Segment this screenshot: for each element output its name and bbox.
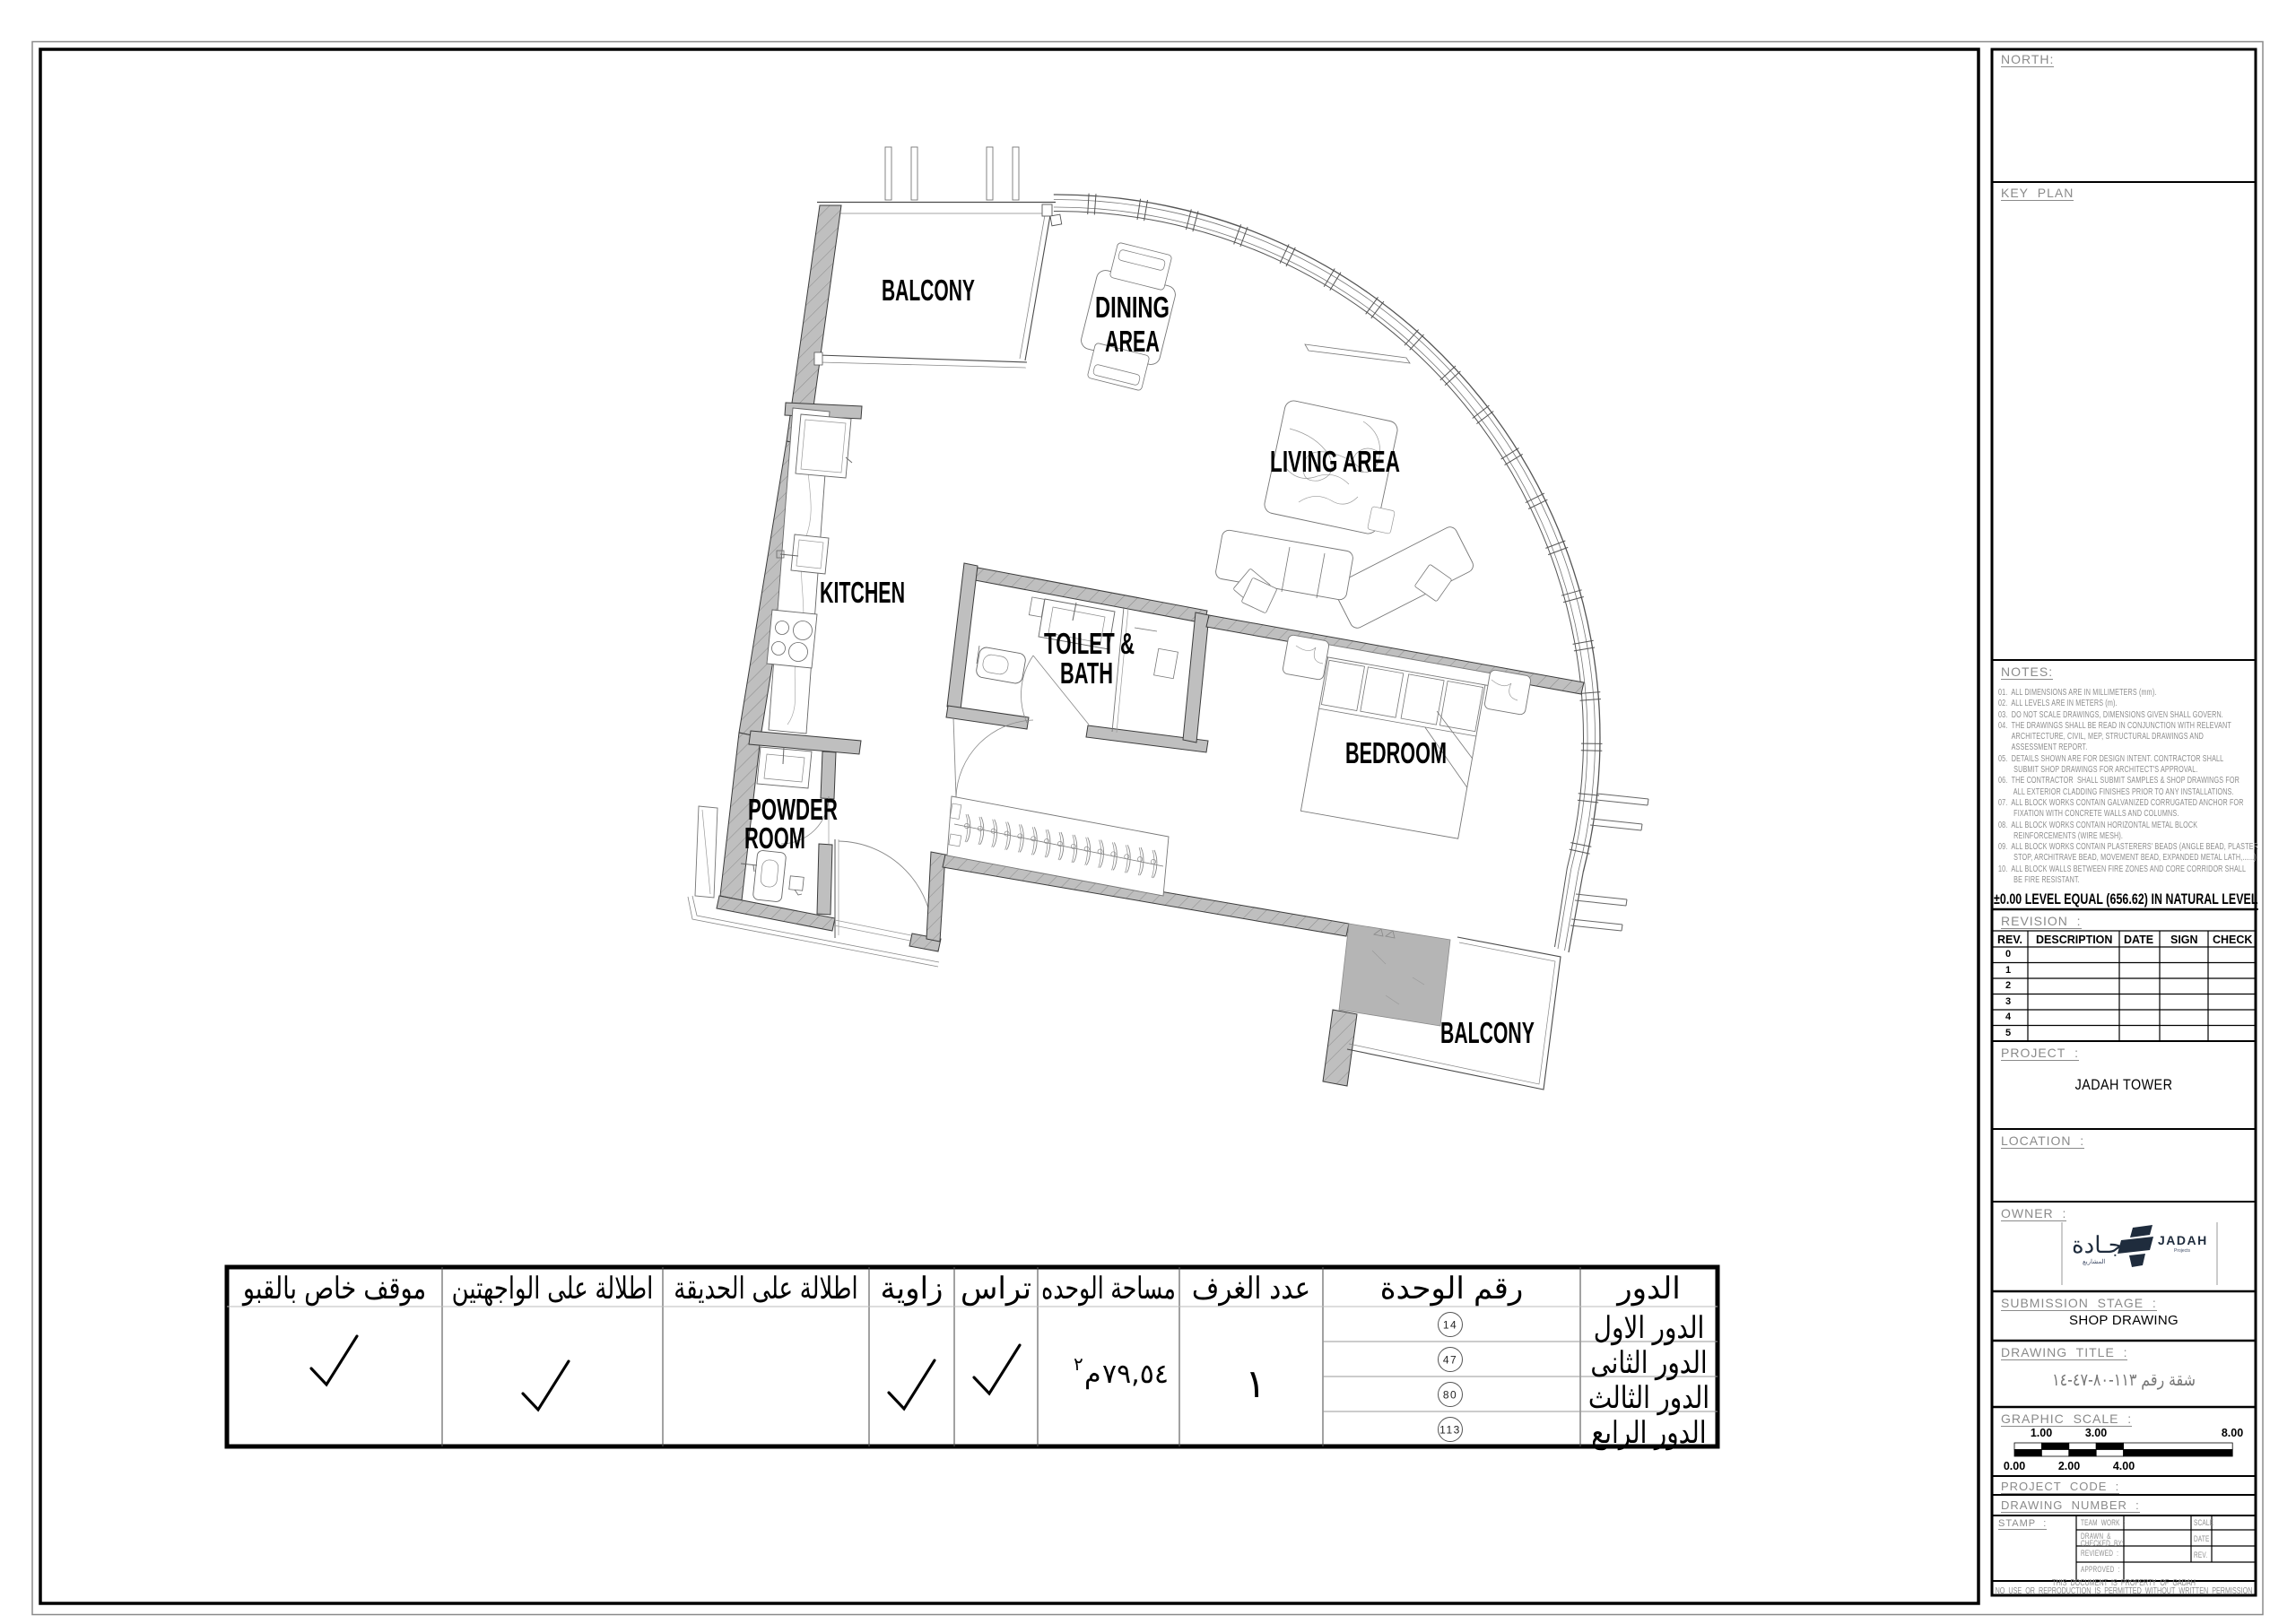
svg-text:DINING: DINING (1095, 291, 1170, 325)
svg-text:47: 47 (1443, 1354, 1457, 1367)
svg-text:80: 80 (1443, 1389, 1457, 1402)
svg-text:BALCONY: BALCONY (1440, 1016, 1535, 1049)
svg-text:BALCONY: BALCONY (882, 274, 975, 307)
svg-text:BEDROOM: BEDROOM (1345, 736, 1447, 769)
svg-text:14: 14 (1443, 1319, 1457, 1332)
svg-text:LIVING AREA: LIVING AREA (1270, 445, 1400, 478)
svg-text:ROOM: ROOM (744, 822, 805, 855)
svg-text:BATH: BATH (1060, 657, 1113, 690)
svg-text:TOILET &: TOILET & (1044, 628, 1135, 660)
svg-text:AREA: AREA (1105, 325, 1160, 358)
svg-text:KITCHEN: KITCHEN (820, 576, 905, 609)
svg-text:113: 113 (1439, 1424, 1461, 1437)
